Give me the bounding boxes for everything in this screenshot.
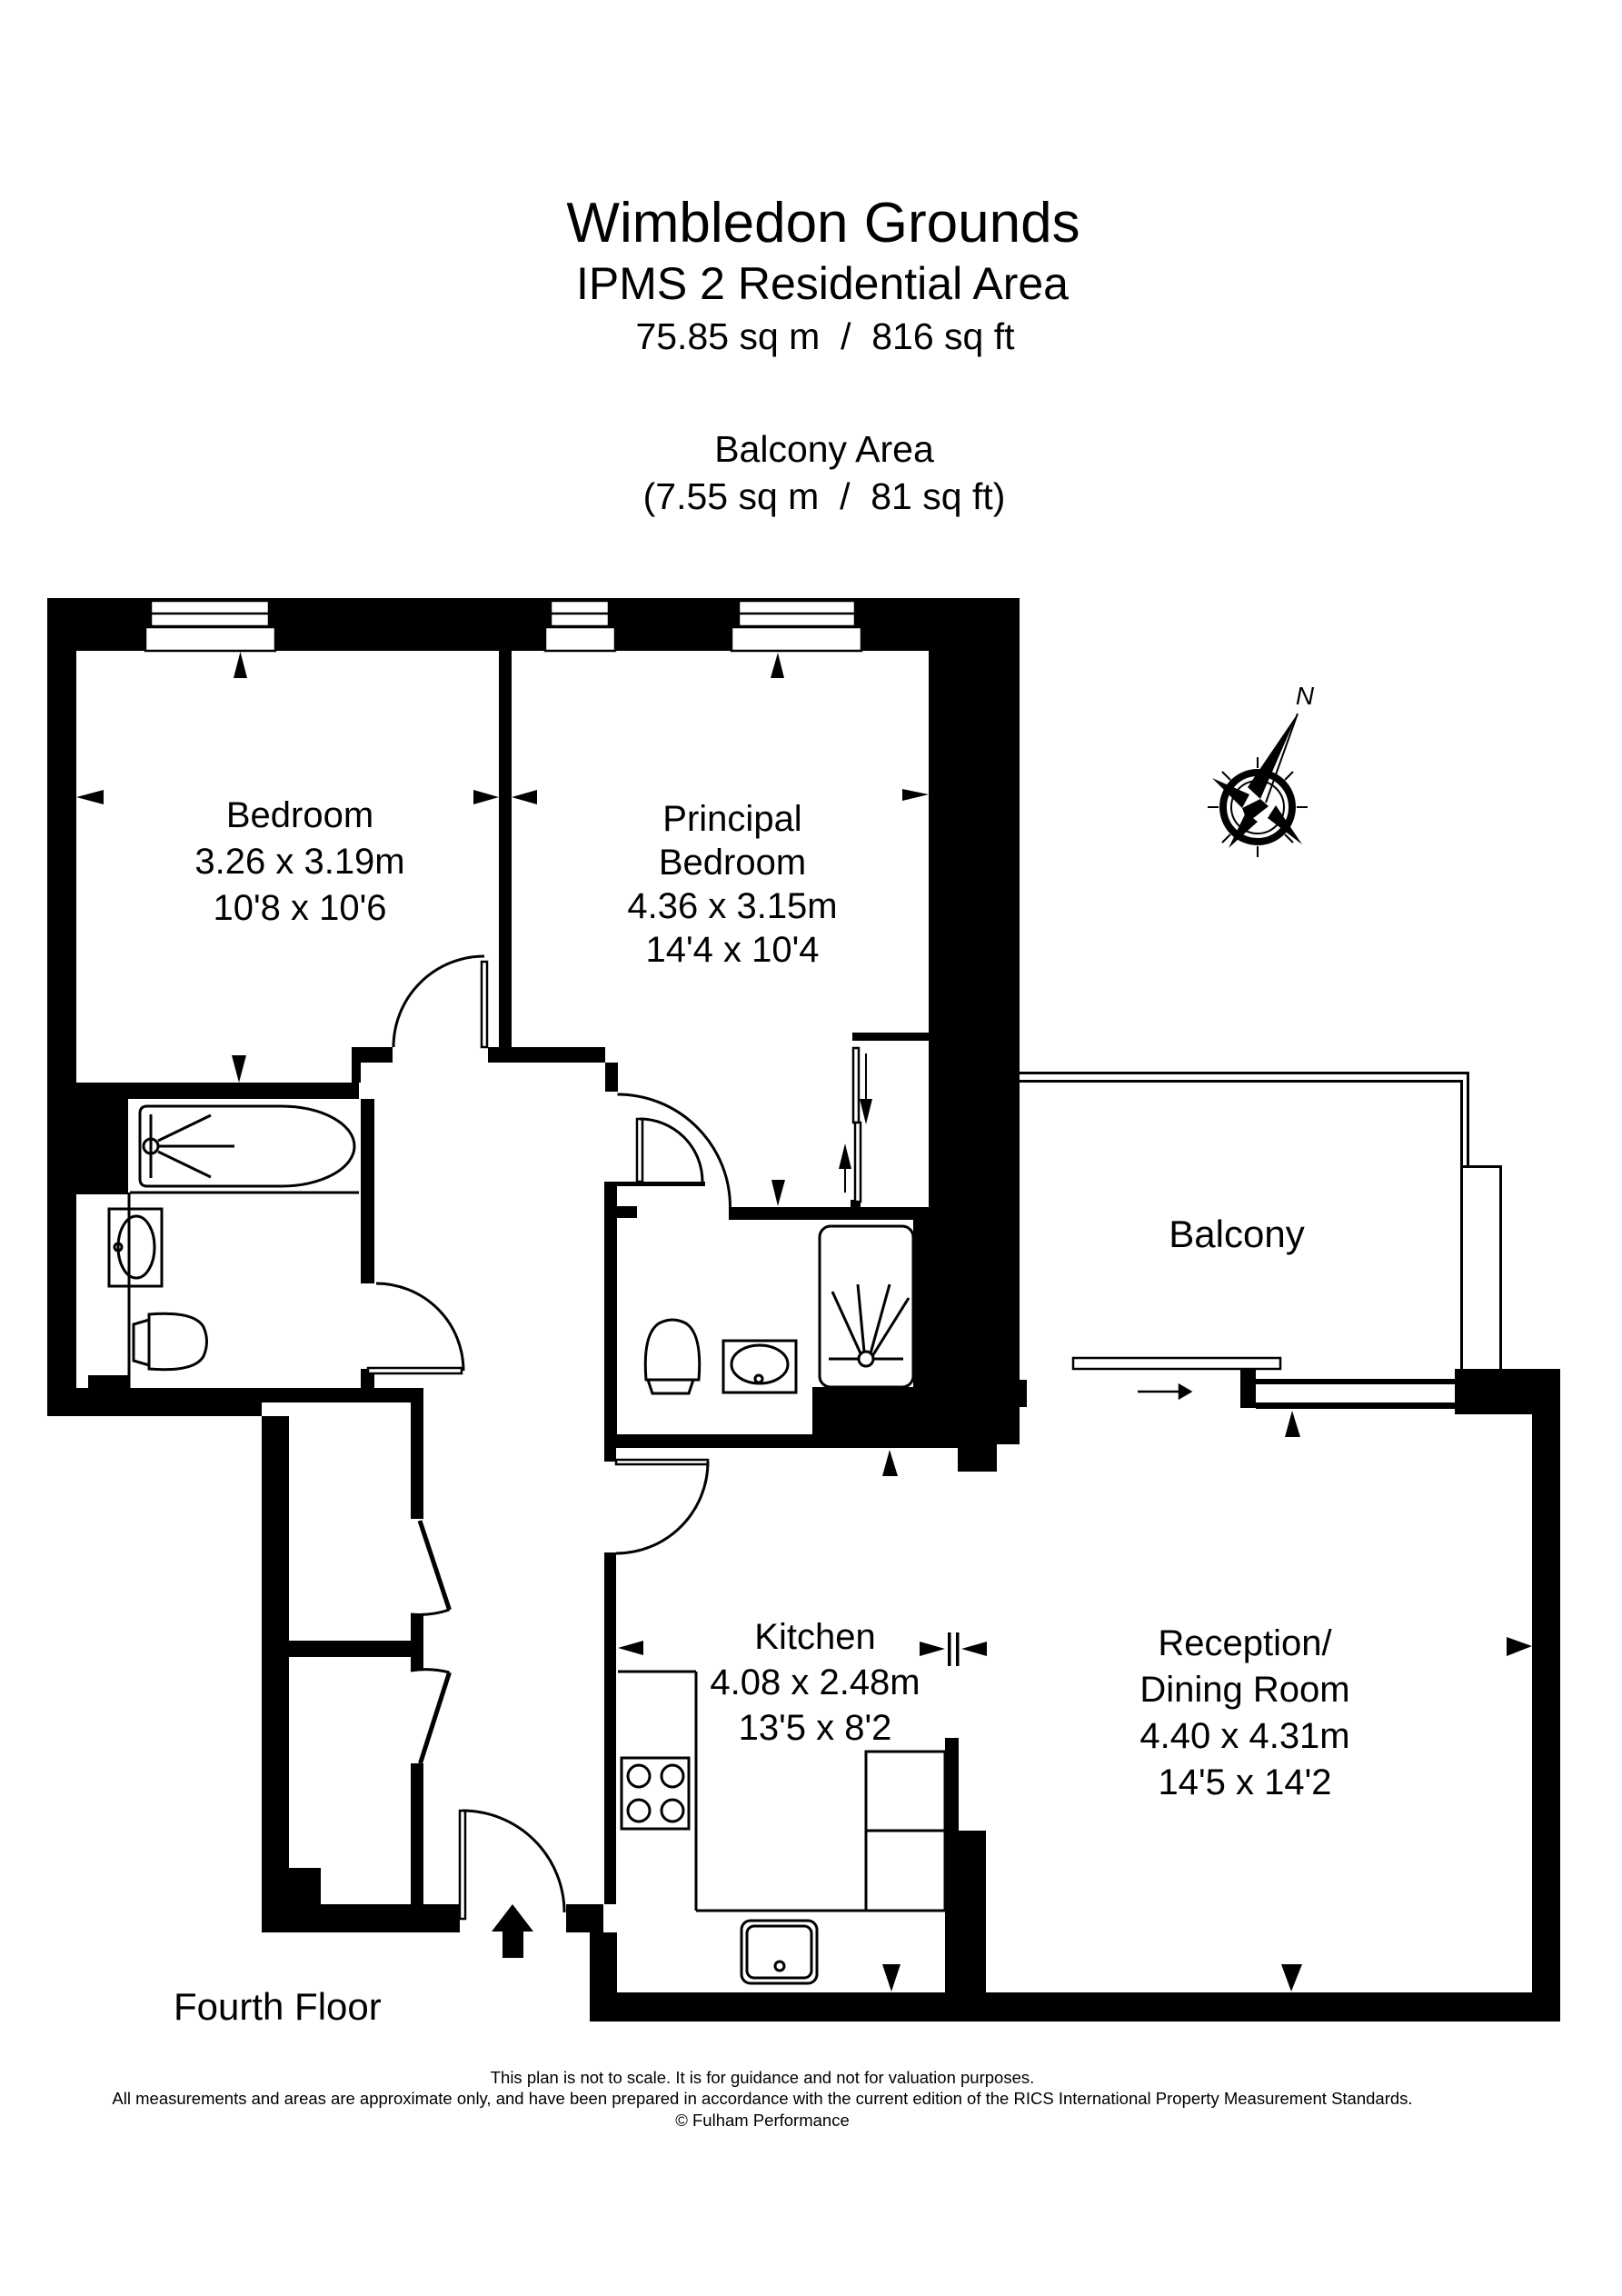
svg-text:Kitchen: Kitchen — [754, 1617, 875, 1657]
svg-text:Principal: Principal — [662, 799, 801, 839]
svg-text:75.85 sq m / 816 sq ft: 75.85 sq m / 816 sq ft — [635, 315, 1015, 357]
svg-text:IPMS 2 Residential Area: IPMS 2 Residential Area — [576, 258, 1069, 309]
svg-text:13'5 x 8'2: 13'5 x 8'2 — [739, 1708, 892, 1748]
svg-text:Balcony Area: Balcony Area — [714, 428, 934, 470]
svg-text:Dining Room: Dining Room — [1139, 1670, 1349, 1710]
svg-text:3.26 x 3.19m: 3.26 x 3.19m — [194, 842, 404, 882]
svg-text:Bedroom: Bedroom — [226, 795, 373, 835]
svg-text:Balcony: Balcony — [1169, 1213, 1304, 1255]
svg-text:14'4 x 10'4: 14'4 x 10'4 — [646, 930, 820, 970]
svg-text:4.40 x 4.31m: 4.40 x 4.31m — [1139, 1716, 1349, 1756]
svg-text:(7.55 sq m / 81 sq ft): (7.55 sq m / 81 sq ft) — [643, 475, 1006, 517]
svg-text:Bedroom: Bedroom — [659, 843, 806, 883]
svg-text:N: N — [1296, 682, 1315, 710]
svg-text:This plan is not to scale. It: This plan is not to scale. It is for gui… — [491, 2068, 1035, 2087]
svg-text:© Fulham Performance: © Fulham Performance — [675, 2111, 850, 2130]
svg-text:All measurements and areas are: All measurements and areas are approxima… — [112, 2089, 1412, 2108]
svg-text:10'8 x 10'6: 10'8 x 10'6 — [214, 888, 387, 928]
svg-text:Fourth Floor: Fourth Floor — [174, 1985, 382, 2028]
svg-text:Wimbledon Grounds: Wimbledon Grounds — [566, 192, 1080, 255]
svg-text:4.08 x 2.48m: 4.08 x 2.48m — [710, 1662, 920, 1702]
svg-text:4.36 x 3.15m: 4.36 x 3.15m — [627, 886, 837, 926]
svg-text:14'5 x 14'2: 14'5 x 14'2 — [1159, 1762, 1332, 1802]
svg-text:Reception/: Reception/ — [1158, 1623, 1332, 1663]
